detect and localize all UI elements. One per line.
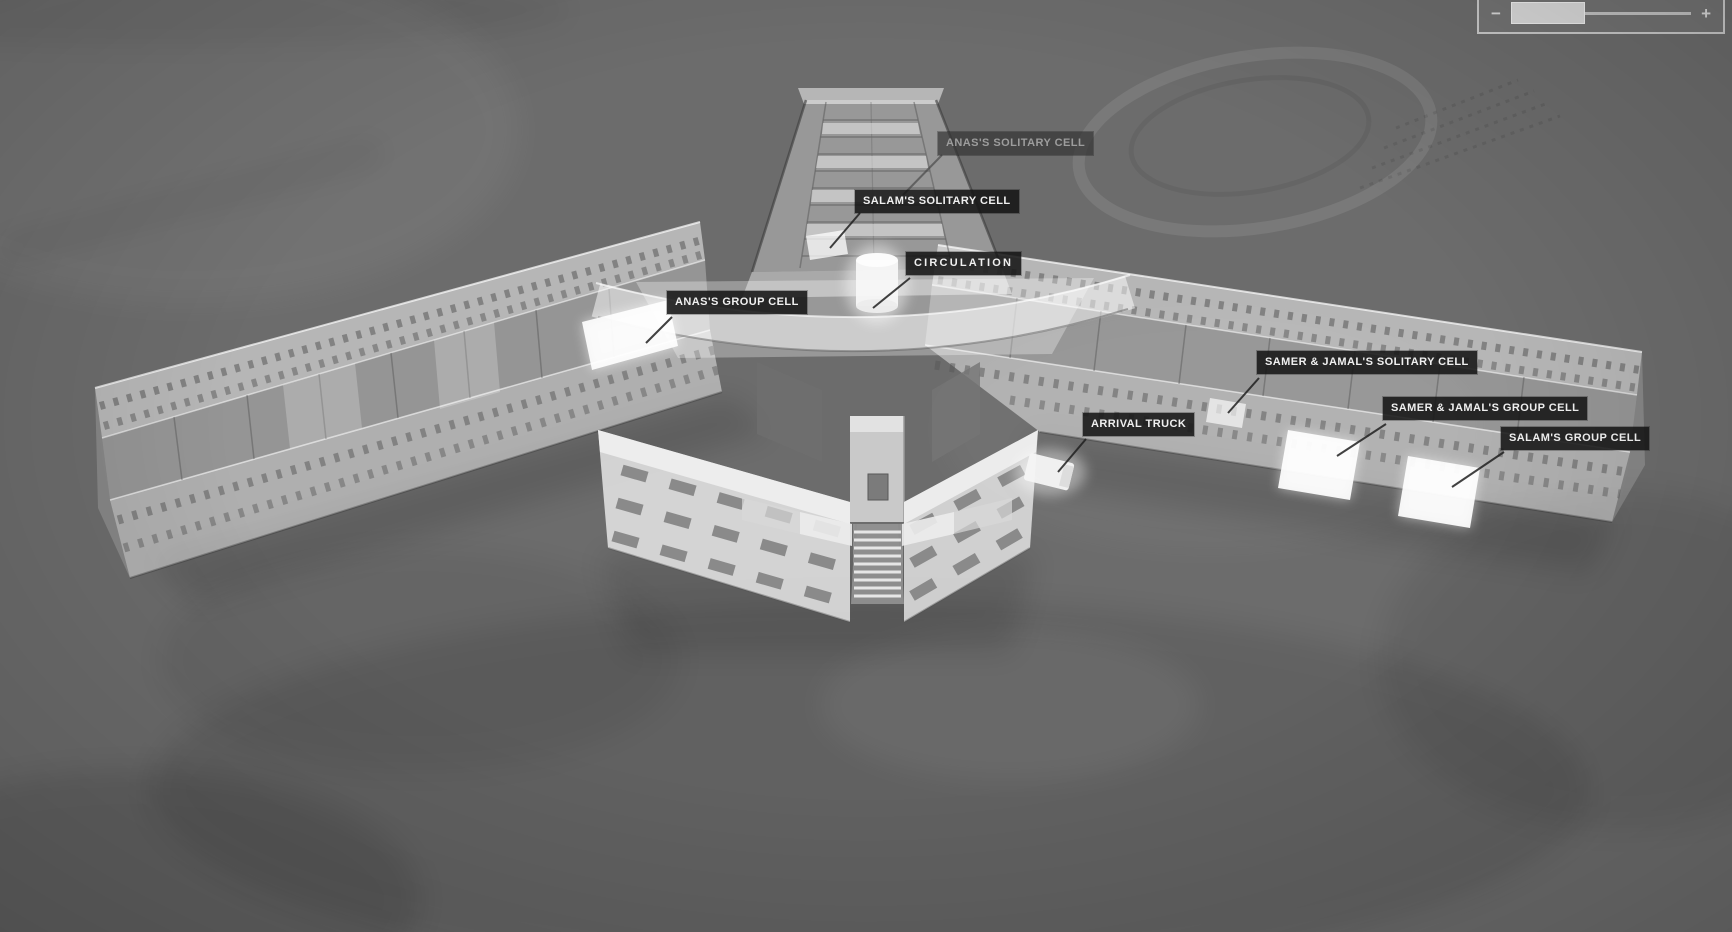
aerial-3d-model-scene xyxy=(0,0,1732,932)
label-arrival-truck: ARRIVAL TRUCK xyxy=(1083,413,1194,436)
label-circulation: CIRCULATION xyxy=(906,252,1021,275)
label-samer-jamal-group-cell: SAMER & JAMAL'S GROUP CELL xyxy=(1383,397,1587,420)
zoom-slider-handle[interactable] xyxy=(1511,2,1585,24)
entrance-tower xyxy=(850,416,904,522)
label-samer-jamal-solitary-cell: SAMER & JAMAL'S SOLITARY CELL xyxy=(1257,351,1477,374)
tower-window xyxy=(868,474,888,500)
label-salam-solitary-cell: SALAM'S SOLITARY CELL xyxy=(855,190,1019,213)
label-anas-group-cell: ANAS'S GROUP CELL xyxy=(667,291,807,314)
zoom-control: − + xyxy=(1477,0,1725,34)
inner-court-wall-left xyxy=(757,362,822,462)
highlight-samer-jamal-group-cell xyxy=(1278,430,1360,500)
label-salam-group-cell: SALAM'S GROUP CELL xyxy=(1501,427,1649,450)
label-anas-solitary-cell: ANAS'S SOLITARY CELL xyxy=(938,132,1093,155)
zoom-out-button[interactable]: − xyxy=(1491,5,1501,22)
reconstruction-viewer: ANAS'S SOLITARY CELL SALAM'S SOLITARY CE… xyxy=(0,0,1732,932)
highlight-salam-group-cell xyxy=(1398,456,1480,528)
zoom-in-button[interactable]: + xyxy=(1701,5,1711,22)
zoom-slider-track[interactable] xyxy=(1511,12,1691,15)
